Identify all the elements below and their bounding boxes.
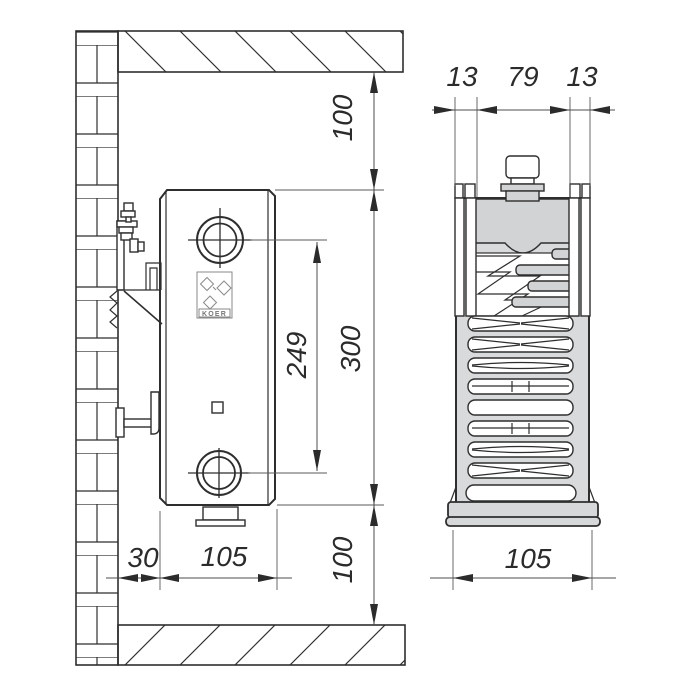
panel-top-tab bbox=[570, 184, 580, 198]
radiator-profile-view bbox=[446, 156, 600, 526]
dim-wall-offset-label: 30 bbox=[127, 542, 159, 573]
brick-wall-column bbox=[76, 31, 118, 665]
outlet-neck bbox=[203, 507, 238, 520]
grille-slot bbox=[468, 358, 573, 373]
logo-text: KOER bbox=[202, 311, 227, 318]
ceiling-section bbox=[118, 31, 403, 72]
front-grille-slots bbox=[466, 316, 576, 501]
arrowhead bbox=[370, 190, 378, 211]
arrowhead bbox=[572, 574, 592, 582]
ceiling-hatch-band bbox=[118, 31, 403, 72]
dim-top-clearance-label: 100 bbox=[327, 94, 358, 141]
valve-step bbox=[511, 178, 534, 184]
panel-top-tab bbox=[582, 184, 590, 198]
grille-slot bbox=[468, 316, 573, 331]
arrowhead bbox=[370, 604, 378, 625]
arrowhead bbox=[370, 484, 378, 505]
panel-top-tab bbox=[465, 184, 475, 198]
convector-fins-cutaway bbox=[467, 249, 578, 316]
bolt-stem bbox=[126, 217, 131, 222]
bolt-cap bbox=[124, 203, 133, 211]
bracket-hook-inner bbox=[150, 268, 157, 290]
arrowhead bbox=[370, 169, 378, 190]
arrowhead bbox=[258, 574, 277, 582]
dim-bottom-clearance-label: 100 bbox=[327, 536, 358, 583]
dim-back-panel-label: 13 bbox=[566, 61, 598, 92]
side-panel-right bbox=[569, 184, 590, 316]
floor-section bbox=[118, 625, 405, 665]
arrowhead bbox=[370, 505, 378, 526]
dim-core-width-label: 79 bbox=[507, 61, 538, 92]
arrowhead bbox=[477, 106, 497, 114]
grille-bar-section bbox=[512, 297, 578, 307]
radiator-dimension-drawing: KOER bbox=[0, 0, 700, 700]
arrowhead bbox=[590, 106, 610, 114]
arrowhead bbox=[160, 574, 179, 582]
arrowhead bbox=[313, 242, 321, 263]
arrowhead bbox=[453, 574, 473, 582]
dim-radiator-height-label: 300 bbox=[335, 325, 366, 372]
drain-outlet bbox=[196, 507, 245, 526]
valve-neck bbox=[506, 191, 539, 201]
dim-front-panel-label: 13 bbox=[446, 61, 478, 92]
arrowhead bbox=[141, 574, 160, 582]
panel-strip bbox=[466, 198, 476, 316]
grille-slot bbox=[468, 400, 573, 415]
base-tray bbox=[448, 502, 598, 518]
brick-wall bbox=[76, 31, 118, 665]
panel-top-tab bbox=[455, 184, 463, 198]
grille-slot bbox=[468, 337, 573, 352]
valve-knob bbox=[506, 156, 539, 178]
side-panel-left bbox=[455, 184, 476, 316]
bracket-rod bbox=[124, 419, 152, 427]
nut bbox=[119, 227, 133, 233]
technical-drawing-page: KOER bbox=[0, 0, 700, 700]
base-lip bbox=[446, 517, 600, 526]
grille-slot bbox=[468, 442, 573, 457]
dim-radiator-depth-label: 105 bbox=[201, 541, 248, 572]
arrowhead bbox=[370, 72, 378, 93]
panel-strip bbox=[581, 198, 590, 316]
arrowhead bbox=[550, 106, 570, 114]
arrowhead bbox=[313, 450, 321, 471]
panel-strip bbox=[569, 198, 579, 316]
side-bolt-head bbox=[138, 242, 144, 251]
valve-flange bbox=[501, 184, 544, 191]
vent-plug-square bbox=[212, 402, 223, 413]
arrowhead bbox=[118, 574, 138, 582]
floor-hatch-band bbox=[118, 625, 405, 665]
bracket-wall-plate bbox=[116, 408, 124, 437]
dim-overall-depth-label: 105 bbox=[505, 543, 552, 574]
grille-slot-bottom bbox=[466, 485, 576, 501]
air-vent-valve bbox=[501, 156, 544, 201]
arrowhead bbox=[434, 106, 455, 114]
bracket-diagonal-brace bbox=[124, 291, 162, 324]
mounting-bracket-lower bbox=[116, 392, 159, 437]
dimension-profile-bottom: 105 bbox=[430, 530, 616, 590]
dim-pipe-spacing-label: 249 bbox=[281, 332, 312, 380]
panel-strip bbox=[455, 198, 464, 316]
bracket-clip bbox=[151, 392, 159, 434]
grille-slot bbox=[468, 463, 573, 478]
bracket-hook-outer bbox=[146, 263, 161, 290]
bolt-head bbox=[121, 211, 135, 217]
side-bolt bbox=[130, 239, 138, 252]
outlet-flange bbox=[196, 520, 245, 526]
